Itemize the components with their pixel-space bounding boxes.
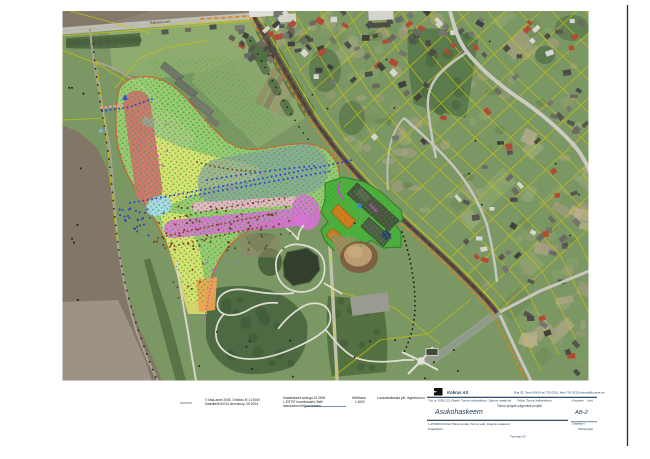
svg-text:Kobras AS: Kobras AS — [447, 390, 468, 395]
svg-text:Torma prügila sulgemise projek: Torma prügila sulgemise projekt — [497, 404, 542, 408]
svg-text:absoluutne kõrgussüsteem: absoluutne kõrgussüsteem — [283, 404, 321, 408]
svg-text:Staadium: Staadium — [572, 422, 585, 426]
svg-text:Leht: Leht — [587, 399, 593, 403]
svg-text:1-15/0363 Kõrtsi-Tõikvere küla: 1-15/0363 Kõrtsi-Tõikvere küla, Torma va… — [428, 422, 510, 426]
svg-text:Formaat A3: Formaat A3 — [510, 435, 526, 439]
svg-text:AB-2: AB-2 — [574, 410, 589, 416]
svg-text:Kaardileht 54744 lennukuup. 05: Kaardileht 54744 lennukuup. 05.2004 — [205, 402, 258, 406]
svg-text:Projektijuht: Projektijuht — [428, 427, 443, 431]
svg-text:Riia 35, Tartu 50410 tel 730: Riia 35, Tartu 50410 tel 730 0310, faks … — [514, 391, 605, 395]
svg-text:Tellija: Torma Vallavalitsus: Tellija: Torma Vallavalitsus — [517, 399, 552, 403]
svg-text:Asukohaskeem: Asukohaskeem — [434, 409, 483, 416]
svg-text:Põhiprojekt: Põhiprojekt — [578, 427, 593, 431]
svg-text:Kuupäev: Kuupäev — [572, 399, 584, 403]
svg-text:Töö nr 2005-121 Objekt: Torma: Töö nr 2005-121 Objekt: Torma vallavalit… — [428, 399, 511, 403]
svg-text:1:2000: 1:2000 — [355, 400, 365, 404]
svg-text:Looduskaitseala piir, registri: Looduskaitseala piir, registriosa nr — [377, 396, 426, 400]
